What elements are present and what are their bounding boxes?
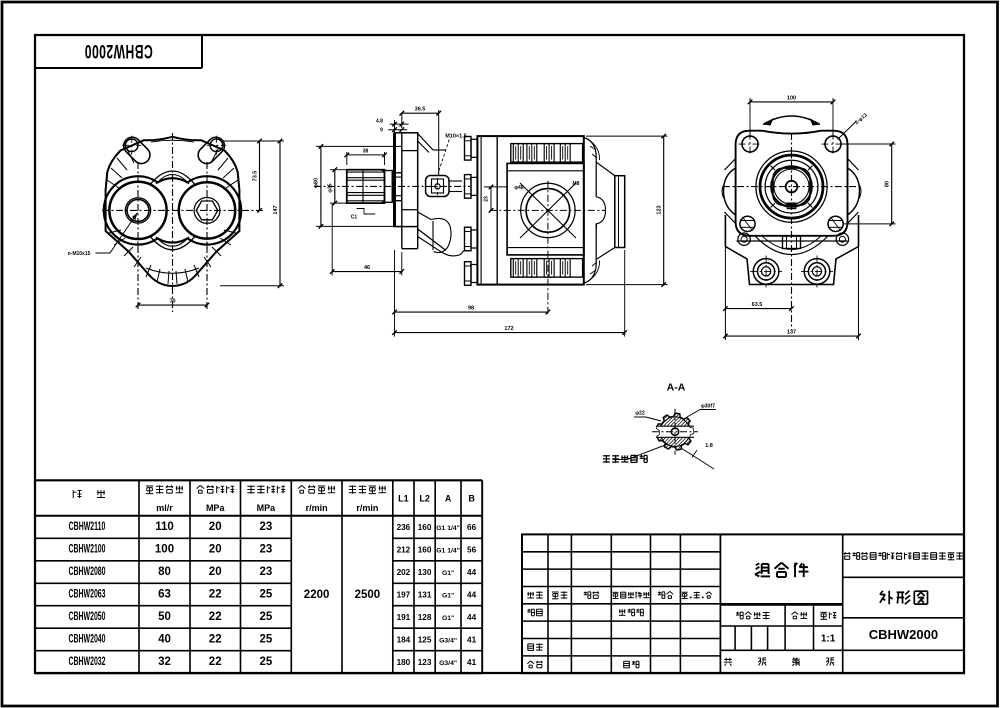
svg-text:A: A xyxy=(445,494,452,504)
svg-text:137: 137 xyxy=(787,330,796,336)
svg-text:G1 1/4": G1 1/4" xyxy=(436,548,460,555)
svg-text:2200: 2200 xyxy=(304,589,330,601)
svg-text:CBHW2050: CBHW2050 xyxy=(68,610,105,623)
svg-text:44: 44 xyxy=(467,568,477,577)
svg-text:160: 160 xyxy=(418,546,432,555)
svg-text:φ80: φ80 xyxy=(314,178,320,188)
svg-text:φ22: φ22 xyxy=(635,411,645,417)
svg-text:202: 202 xyxy=(397,568,411,577)
svg-text:G1 1/4": G1 1/4" xyxy=(436,525,460,532)
svg-text:MPa: MPa xyxy=(257,503,277,513)
svg-text:32: 32 xyxy=(158,656,171,668)
svg-text:20: 20 xyxy=(209,521,222,533)
svg-text:131: 131 xyxy=(418,591,432,600)
svg-text:L1: L1 xyxy=(398,494,409,504)
svg-text:236: 236 xyxy=(397,523,411,532)
svg-text:73.5: 73.5 xyxy=(253,171,259,182)
svg-text:20: 20 xyxy=(209,566,222,578)
svg-text:φ30f7: φ30f7 xyxy=(701,404,715,410)
svg-text:56: 56 xyxy=(467,546,477,555)
svg-text:CBHW2040: CBHW2040 xyxy=(68,633,105,646)
svg-text:G3/4": G3/4" xyxy=(439,660,457,667)
svg-text:128: 128 xyxy=(418,613,432,622)
svg-text:n-M10x15: n-M10x15 xyxy=(68,251,91,257)
svg-text:110: 110 xyxy=(155,521,174,533)
svg-text:80: 80 xyxy=(158,566,171,578)
svg-text:B: B xyxy=(468,494,475,504)
svg-text:25: 25 xyxy=(260,611,273,623)
svg-text:22: 22 xyxy=(209,656,222,668)
svg-text:36.5: 36.5 xyxy=(415,107,426,113)
svg-text:125: 125 xyxy=(418,636,432,645)
svg-text:G1": G1" xyxy=(442,593,454,600)
svg-text:130: 130 xyxy=(418,568,432,577)
svg-text:44: 44 xyxy=(467,591,477,600)
svg-text:4.8: 4.8 xyxy=(376,119,383,125)
svg-text:172: 172 xyxy=(504,326,513,332)
svg-text:191: 191 xyxy=(397,613,411,622)
svg-text:70: 70 xyxy=(169,299,175,305)
svg-text:123: 123 xyxy=(657,205,663,214)
svg-text:46: 46 xyxy=(364,265,370,271)
svg-text:98: 98 xyxy=(468,306,474,312)
svg-text:A-A: A-A xyxy=(667,382,686,394)
svg-text:197: 197 xyxy=(397,591,411,600)
svg-text:ml/r: ml/r xyxy=(156,503,173,513)
svg-text:50: 50 xyxy=(158,611,171,623)
svg-text:22: 22 xyxy=(209,589,222,601)
svg-text:CBHW2000: CBHW2000 xyxy=(84,40,152,62)
svg-text:22: 22 xyxy=(209,611,222,623)
svg-text:23: 23 xyxy=(260,521,273,533)
svg-text:2-φ13: 2-φ13 xyxy=(854,112,869,126)
svg-text:23: 23 xyxy=(260,544,273,556)
svg-text:CBHW2110: CBHW2110 xyxy=(69,520,106,533)
svg-text:M10×1.5: M10×1.5 xyxy=(445,134,467,140)
svg-text:CBHW2063: CBHW2063 xyxy=(68,588,105,601)
svg-text:25: 25 xyxy=(260,634,273,646)
svg-text:1:8: 1:8 xyxy=(705,443,713,449)
svg-text:63: 63 xyxy=(158,589,171,601)
svg-text:9: 9 xyxy=(380,128,383,134)
svg-text:147: 147 xyxy=(273,205,279,214)
svg-text:G1": G1" xyxy=(442,570,454,577)
svg-text:212: 212 xyxy=(397,546,411,555)
svg-text:G1": G1" xyxy=(442,615,454,622)
svg-text:44: 44 xyxy=(467,613,477,622)
svg-text:63.5: 63.5 xyxy=(752,302,763,308)
svg-text:G3/4": G3/4" xyxy=(439,638,457,645)
svg-text:1:1: 1:1 xyxy=(821,634,836,645)
svg-text:160: 160 xyxy=(418,523,432,532)
svg-text:23: 23 xyxy=(484,196,490,202)
svg-text:66: 66 xyxy=(467,523,477,532)
svg-text:CBHW2000: CBHW2000 xyxy=(869,627,938,642)
svg-text:41: 41 xyxy=(467,658,477,667)
svg-text:r/min: r/min xyxy=(306,503,328,513)
svg-text:φ48: φ48 xyxy=(514,185,523,191)
svg-text:22: 22 xyxy=(209,634,222,646)
svg-text:CBHW2100: CBHW2100 xyxy=(68,543,105,556)
svg-text:100: 100 xyxy=(787,96,796,102)
svg-text:38: 38 xyxy=(363,149,369,155)
svg-text:40: 40 xyxy=(158,634,171,646)
svg-text:M8: M8 xyxy=(573,181,580,187)
svg-text:r/min: r/min xyxy=(356,503,378,513)
svg-text:180: 180 xyxy=(397,658,411,667)
svg-text:2500: 2500 xyxy=(355,589,381,601)
svg-text:φ35: φ35 xyxy=(328,183,334,192)
svg-text:CBHW2032: CBHW2032 xyxy=(68,655,105,668)
svg-text:25: 25 xyxy=(260,656,273,668)
svg-text:123: 123 xyxy=(418,658,432,667)
svg-text:25: 25 xyxy=(260,589,273,601)
svg-text:CBHW2080: CBHW2080 xyxy=(68,565,105,578)
svg-text:C1: C1 xyxy=(351,215,358,221)
svg-text:184: 184 xyxy=(397,636,411,645)
svg-text:80: 80 xyxy=(885,181,891,187)
svg-text:41: 41 xyxy=(467,636,477,645)
svg-text:100: 100 xyxy=(155,544,174,556)
svg-text:23: 23 xyxy=(260,566,273,578)
svg-text:20: 20 xyxy=(209,544,222,556)
svg-text:MPa: MPa xyxy=(206,503,226,513)
svg-text:L2: L2 xyxy=(419,494,430,504)
